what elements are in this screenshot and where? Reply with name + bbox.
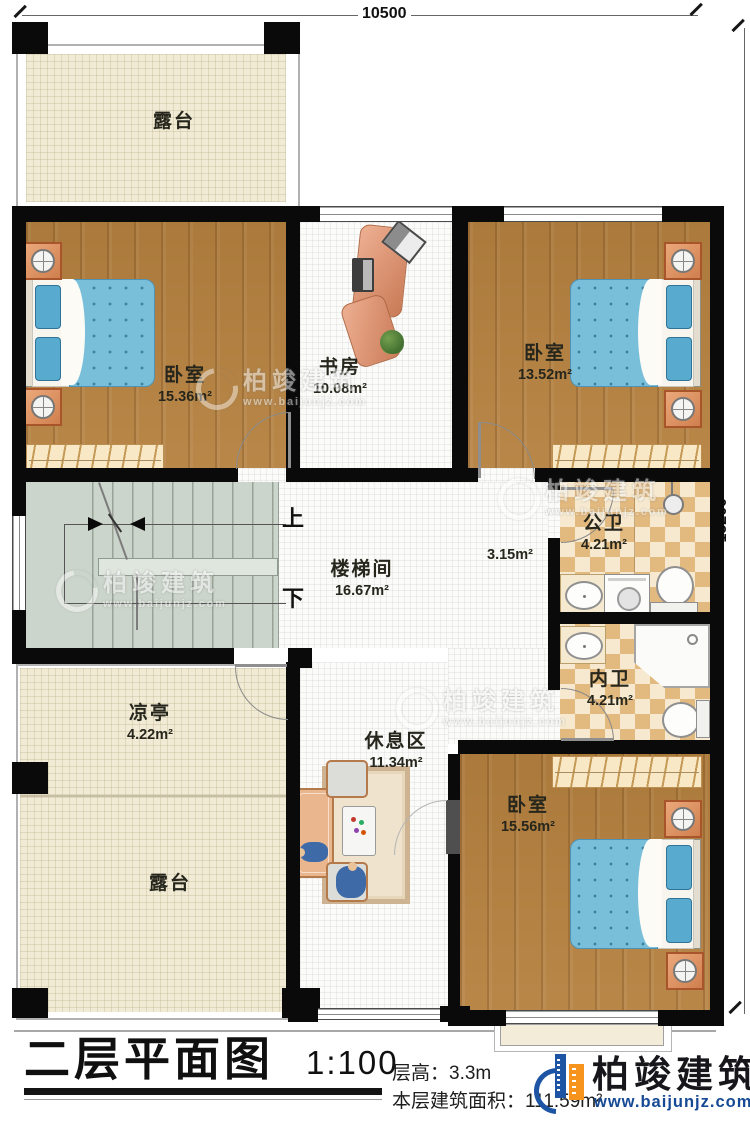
brand-logo-building-orange <box>569 1064 584 1100</box>
drawing-scale: 1:100 <box>306 1046 399 1079</box>
window <box>320 206 452 222</box>
room-label-rest-area: 休息区 11.34m² <box>348 730 444 772</box>
pillow <box>666 285 692 329</box>
window <box>12 516 26 610</box>
dimension-line-right <box>744 28 745 1014</box>
stair-guide-line <box>64 524 65 604</box>
hall-floor <box>236 468 293 482</box>
wall <box>293 468 478 482</box>
wall <box>12 482 26 516</box>
stair-down-line <box>64 603 286 604</box>
plant-icon <box>380 330 404 354</box>
corridor-floor <box>448 648 548 744</box>
brand-url: www.baijunjz.com <box>594 1094 750 1111</box>
stair-direction-line <box>136 574 138 630</box>
wall <box>300 206 322 222</box>
stair-up-label: 上 <box>282 508 304 530</box>
arrow-icon <box>130 517 145 531</box>
wall <box>658 1010 724 1026</box>
page-title: 二层平面图 <box>24 1036 274 1082</box>
wall <box>452 222 468 482</box>
area-label-corridor: 3.15m² <box>478 546 542 564</box>
terrace-divider <box>20 795 286 797</box>
pillow <box>666 337 692 381</box>
room-label-bedroom-2: 卧室 13.52m² <box>500 342 590 384</box>
floor-plan: 10500 15200 露台 卧室 15.36m² 书房 <box>0 0 750 1125</box>
room-label-stairwell: 楼梯间 16.67m² <box>310 558 414 600</box>
toilet-tank <box>696 700 710 738</box>
wall <box>535 468 724 482</box>
wall <box>450 206 506 222</box>
bed-icon <box>568 837 700 949</box>
wall <box>448 754 460 802</box>
pillow <box>666 845 692 890</box>
dimension-tick <box>728 1001 741 1014</box>
lamp-icon <box>673 959 697 983</box>
corridor-floor <box>548 690 560 740</box>
wall <box>448 854 460 1012</box>
wall <box>286 662 300 1010</box>
wardrobe-icon <box>552 756 702 788</box>
room-label-private-bath: 内卫 4.21m² <box>574 668 646 710</box>
window <box>318 1008 440 1020</box>
stair-landing <box>98 558 278 576</box>
dimension-tick <box>689 3 702 16</box>
wall <box>12 648 234 664</box>
shower-head-icon <box>663 494 684 515</box>
room-label-pavilion: 凉亭 4.22m² <box>110 702 190 744</box>
room-label-study: 书房 10.08m² <box>300 356 380 398</box>
wall <box>548 624 560 690</box>
column <box>12 988 48 1018</box>
floor-height-label: 层高：3.3m <box>392 1064 491 1083</box>
column <box>12 22 48 54</box>
wall <box>710 206 724 482</box>
nightstand-icon <box>664 390 702 428</box>
title-underline <box>24 1088 382 1095</box>
nightstand-icon <box>664 800 702 838</box>
room-label-terrace-top: 露台 <box>132 110 216 134</box>
pillow <box>35 285 61 329</box>
bed-fold <box>638 279 662 385</box>
brand-name: 柏竣建筑 <box>592 1056 750 1093</box>
sink-icon <box>565 581 603 610</box>
column <box>264 22 300 54</box>
person-icon <box>348 862 357 871</box>
toilet-icon <box>662 702 700 738</box>
stair-down-label: 下 <box>282 588 304 610</box>
room-label-public-bath: 公卫 4.21m² <box>568 512 640 554</box>
dimension-tick <box>731 19 744 32</box>
bay-window <box>506 1010 658 1024</box>
window <box>504 206 662 222</box>
bay-window-sill <box>500 1024 664 1046</box>
nightstand-icon <box>664 242 702 280</box>
wall <box>440 1006 470 1022</box>
wall <box>458 740 724 754</box>
monitor-icon <box>352 258 374 292</box>
lamp-icon <box>671 249 695 273</box>
terrace-bottom-floor <box>20 797 286 1012</box>
dimension-width-label: 10500 <box>358 4 411 23</box>
room-label-bedroom-3: 卧室 15.56m² <box>484 794 572 836</box>
room-label-terrace-bottom: 露台 <box>130 872 210 896</box>
sink-icon <box>565 632 603 660</box>
bed-icon <box>25 277 153 387</box>
pillow <box>666 898 692 943</box>
room-label-bedroom-1: 卧室 15.36m² <box>142 364 228 406</box>
lamp-icon <box>31 249 55 273</box>
bed-fold <box>638 839 662 947</box>
wall <box>548 612 724 624</box>
pillow <box>35 337 61 381</box>
wall <box>288 1006 318 1022</box>
nightstand-icon <box>24 388 62 426</box>
brand-logo-icon <box>534 1052 588 1112</box>
washing-machine-icon <box>604 574 650 614</box>
lamp-icon <box>671 397 695 421</box>
door-leaf <box>446 800 460 854</box>
brand-logo-building-blue <box>555 1054 566 1098</box>
toilet-icon <box>656 566 694 606</box>
wall <box>12 468 238 482</box>
wall <box>12 206 26 482</box>
wall <box>710 482 724 1014</box>
lamp-icon <box>671 807 695 831</box>
wall <box>548 482 560 490</box>
nightstand-icon <box>24 242 62 280</box>
column <box>12 762 48 794</box>
title-underline-thin <box>24 1099 382 1100</box>
wall <box>12 206 300 222</box>
corridor-floor <box>548 490 560 540</box>
arrow-icon <box>88 517 103 531</box>
nightstand-icon <box>666 952 704 990</box>
lamp-icon <box>31 395 55 419</box>
coffee-table-icon <box>342 806 376 856</box>
